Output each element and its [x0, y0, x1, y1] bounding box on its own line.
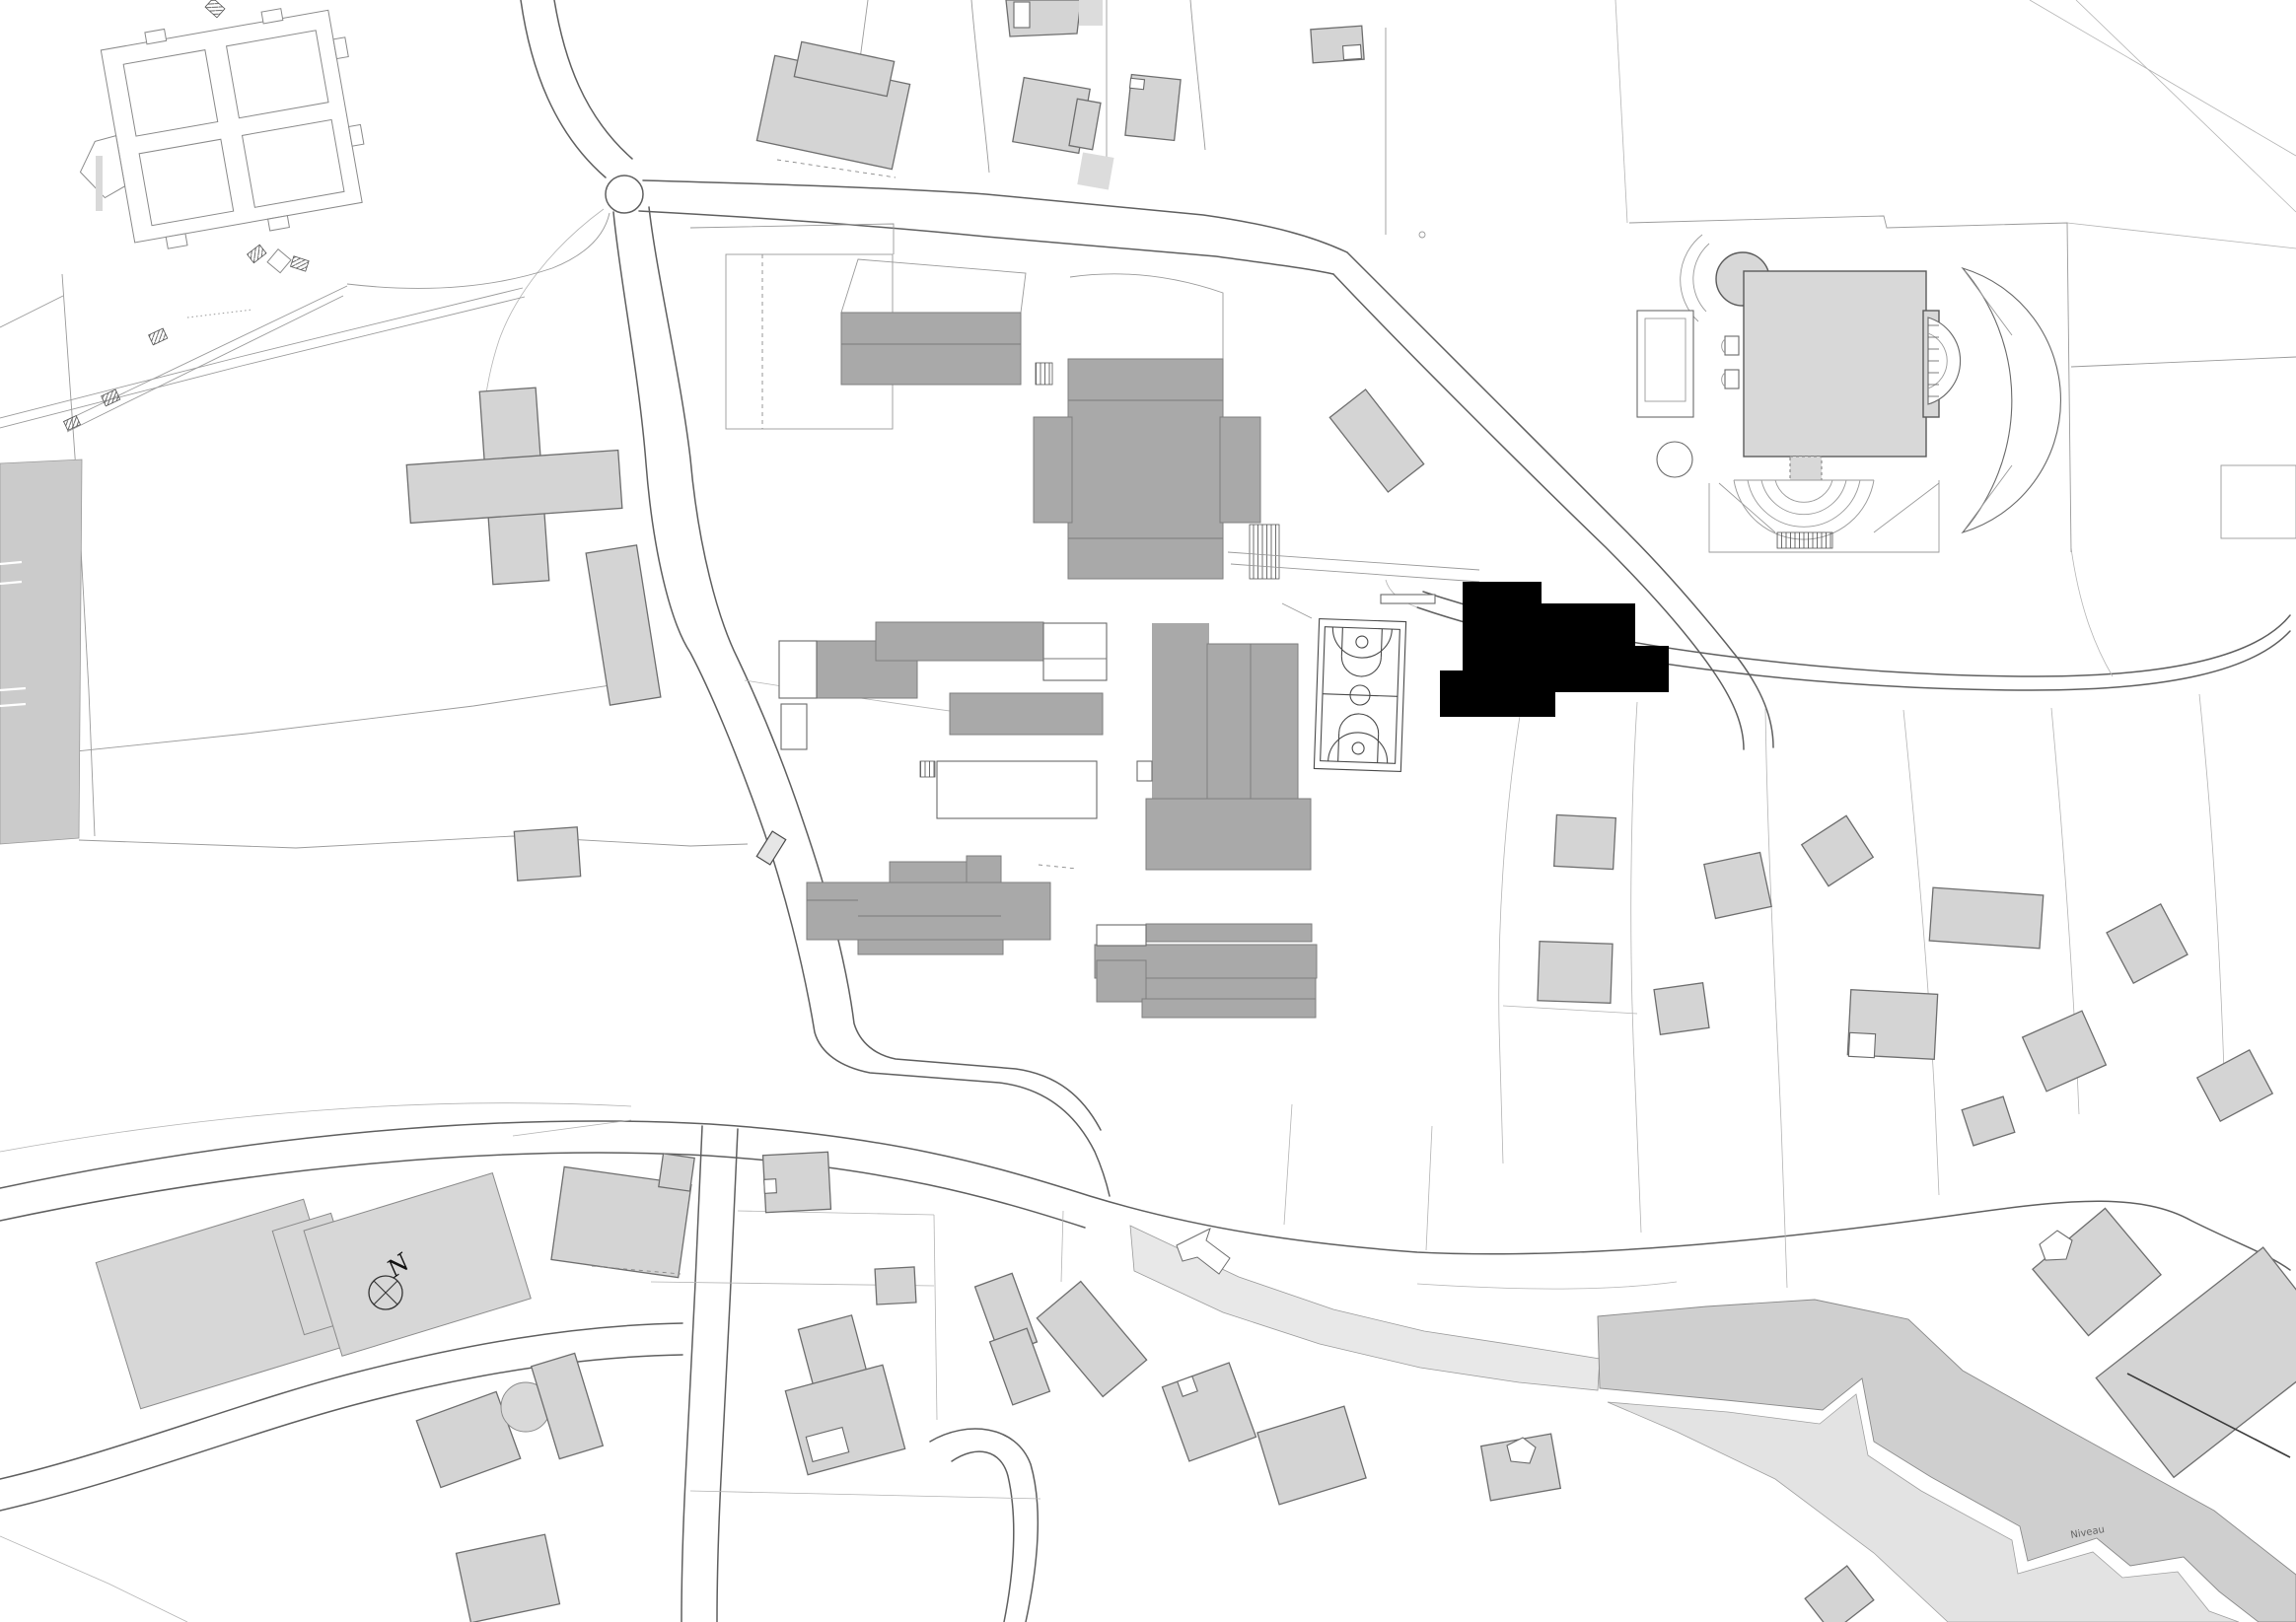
- house: [2107, 904, 2188, 983]
- stepped-house: [756, 41, 909, 177]
- bottom-centre-houses: [551, 1152, 1049, 1474]
- house: [763, 1152, 831, 1212]
- house: [1311, 26, 1364, 63]
- church-main-building: [1744, 271, 1926, 457]
- house: [457, 1534, 560, 1622]
- house: [1481, 1434, 1561, 1501]
- stairs: [1250, 525, 1279, 579]
- courtyard-1: [123, 50, 218, 136]
- long-bar-building: [586, 545, 661, 705]
- house: [1013, 78, 1101, 154]
- monastery-complex: [58, 0, 376, 430]
- road-top-upper-edge: [643, 180, 1347, 252]
- road-north-east-edge: [554, 0, 632, 159]
- diamond-building: [1329, 389, 1423, 492]
- house: [1704, 853, 1771, 919]
- courtyard-4: [243, 119, 344, 207]
- west-slab-building: [0, 459, 82, 844]
- house: [1802, 815, 1874, 885]
- garden-square: [1077, 152, 1113, 189]
- road-fork-path: [483, 209, 604, 419]
- hall-east-wing: [1220, 417, 1260, 523]
- school-south-building: [1095, 924, 1317, 1018]
- house: [785, 1315, 904, 1475]
- house: [1805, 1566, 1874, 1622]
- house: [1162, 1363, 1256, 1461]
- house: [2197, 1050, 2272, 1121]
- house: [1125, 75, 1181, 141]
- road-bottom-lower-east: [1417, 1282, 1677, 1289]
- house: [1538, 942, 1613, 1004]
- house: [1554, 814, 1616, 869]
- crescent-amphitheatre: [1963, 268, 2060, 532]
- school-north-block: [841, 313, 1021, 385]
- east-residential: [1538, 814, 2272, 1145]
- house: [1847, 990, 1937, 1060]
- hall-west-wing: [1034, 417, 1072, 523]
- round-basin: [1657, 442, 1692, 477]
- southwest-buildings: [96, 1173, 603, 1622]
- church-south-stub: [1790, 457, 1822, 480]
- courtyard-3: [139, 139, 234, 225]
- house: [1037, 1282, 1146, 1397]
- small-barn: [514, 827, 580, 881]
- shed: [756, 831, 785, 865]
- annex-building: [779, 641, 817, 698]
- outbuilding: [875, 1267, 916, 1305]
- south-terraces: [1719, 480, 1939, 548]
- stairs-hatch: [205, 0, 225, 18]
- roundabout: [606, 176, 643, 213]
- cul-de-sac-inner: [952, 1451, 1014, 1622]
- house: [1257, 1406, 1366, 1505]
- church-east-lane: [2071, 548, 2113, 676]
- house: [2033, 1208, 2161, 1335]
- sidewalk-line: [0, 1103, 631, 1152]
- house: [551, 1154, 694, 1278]
- road-top-lower-edge: [639, 211, 1333, 274]
- school-east-building: [1137, 623, 1311, 870]
- house: [1654, 983, 1709, 1035]
- house: [975, 1273, 1050, 1404]
- courtyard-2: [227, 31, 328, 118]
- cul-de-sac-outer: [930, 1429, 1038, 1622]
- stairs: [1036, 363, 1052, 385]
- tower-arcs: [1693, 244, 1709, 312]
- road-north-west-edge: [521, 0, 606, 177]
- site-plan: Niveau: [0, 0, 2296, 1622]
- house: [1962, 1096, 2015, 1146]
- school-complex: [756, 313, 1317, 1018]
- street-vertical-east: [717, 1129, 738, 1622]
- school-hall: [1068, 359, 1223, 579]
- site-plan-canvas: Niveau: [0, 0, 2296, 1622]
- top-centre-houses: [756, 0, 1364, 190]
- road-bottom-lower: [0, 1153, 1085, 1228]
- house: [1929, 887, 2043, 949]
- house: [2023, 1011, 2107, 1092]
- basketball-court: [1314, 619, 1405, 772]
- entrance-diamond: [267, 249, 291, 273]
- school-sw-building: [807, 856, 1050, 954]
- large-slab-east: [304, 1173, 531, 1357]
- highlighted-building: [1440, 582, 1669, 717]
- monastery-west-wall: [96, 156, 103, 211]
- church-complex: [1629, 216, 2071, 552]
